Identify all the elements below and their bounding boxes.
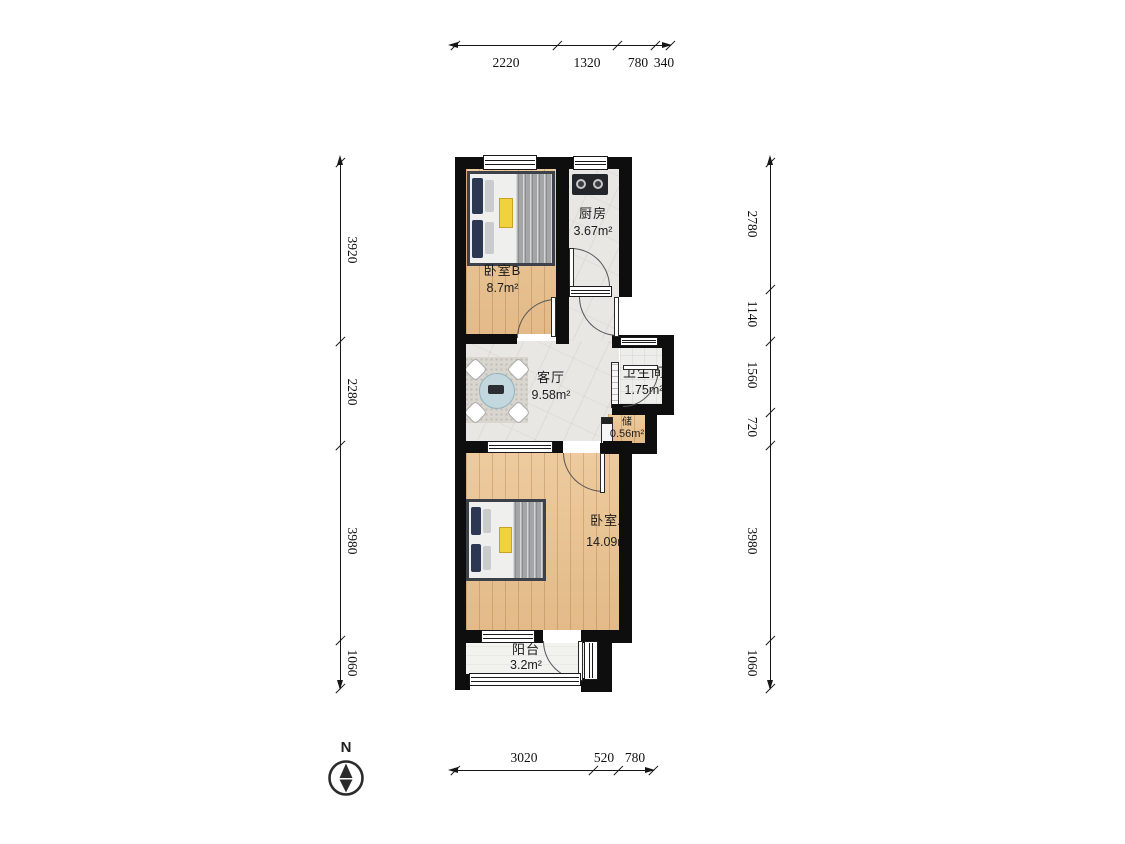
wall [556, 157, 569, 344]
window [483, 155, 537, 170]
compass-north-label: N [324, 740, 368, 756]
dimension-line [455, 770, 653, 771]
dimension-value: 1060 [344, 641, 360, 685]
wall [598, 630, 612, 692]
window [584, 641, 598, 680]
door-leaf [569, 248, 574, 288]
room-area: 0.56m² [610, 428, 644, 440]
room-label-kitchen: 厨房 3.67m² [564, 203, 622, 238]
table-centerpiece-icon [488, 385, 504, 394]
window [487, 441, 553, 453]
room-area: 3.2m² [510, 658, 542, 672]
dimension-value: 3980 [344, 519, 360, 563]
room-label-bedroom-a: 卧室A 14.09m² [575, 510, 643, 549]
dimension-value: 780 [605, 750, 665, 766]
room-label-storage: 储 0.56m² [606, 413, 648, 440]
wall [455, 630, 481, 643]
north-compass-icon: N [324, 740, 368, 805]
wall [455, 674, 470, 690]
floor-plan-canvas: 卧室B 8.7m² 厨房 3.67m² 客厅 9.58m² 卫生间 1.75m²… [0, 0, 1125, 844]
dimension-value: 2220 [476, 55, 536, 71]
dimension-value: 2280 [344, 370, 360, 414]
room-name: 卧室B [484, 260, 522, 279]
window [469, 673, 581, 686]
room-label-bedroom-b: 卧室B 8.7m² [460, 260, 545, 295]
wall [581, 678, 598, 692]
bed-icon [466, 499, 546, 581]
stove-icon [572, 174, 608, 195]
door-leaf [623, 365, 658, 370]
window [573, 156, 608, 170]
dimension-line [770, 162, 771, 688]
room-area: 9.58m² [532, 388, 571, 402]
room-name: 厨房 [579, 203, 607, 222]
dimension-line [340, 162, 341, 688]
dimension-line [455, 45, 670, 46]
door-leaf [551, 297, 556, 337]
wall [619, 157, 632, 297]
compass-needle-icon [340, 764, 353, 779]
window [620, 337, 658, 346]
compass-dial-icon [324, 756, 368, 800]
wall [553, 441, 563, 453]
dimension-value: 340 [634, 55, 694, 71]
door-leaf [600, 453, 605, 493]
compass-needle-icon [340, 780, 353, 793]
wall [535, 630, 543, 643]
dimension-value: 1140 [744, 292, 760, 336]
dimension-value: 1060 [744, 641, 760, 685]
dimension-value: 1560 [744, 353, 760, 397]
wall [455, 334, 517, 344]
wall [612, 404, 674, 415]
wall [455, 441, 487, 453]
room-label-living: 客厅 9.58m² [520, 367, 582, 402]
window [481, 630, 535, 643]
room-name: 客厅 [537, 367, 565, 386]
dimension-value: 720 [744, 405, 760, 449]
dimension-value: 3020 [494, 750, 554, 766]
dimension-value: 2780 [744, 202, 760, 246]
dimension-value: 3920 [344, 228, 360, 272]
dimension-value: 3980 [744, 519, 760, 563]
door-leaf [614, 297, 619, 337]
room-name: 储 [622, 413, 632, 428]
room-area: 3.67m² [574, 224, 613, 238]
wall [619, 441, 632, 643]
kitchen-sliding-door [569, 286, 612, 297]
bed-icon [467, 171, 555, 266]
wall [455, 157, 466, 690]
room-area: 8.7m² [487, 281, 519, 295]
wall [662, 335, 674, 415]
